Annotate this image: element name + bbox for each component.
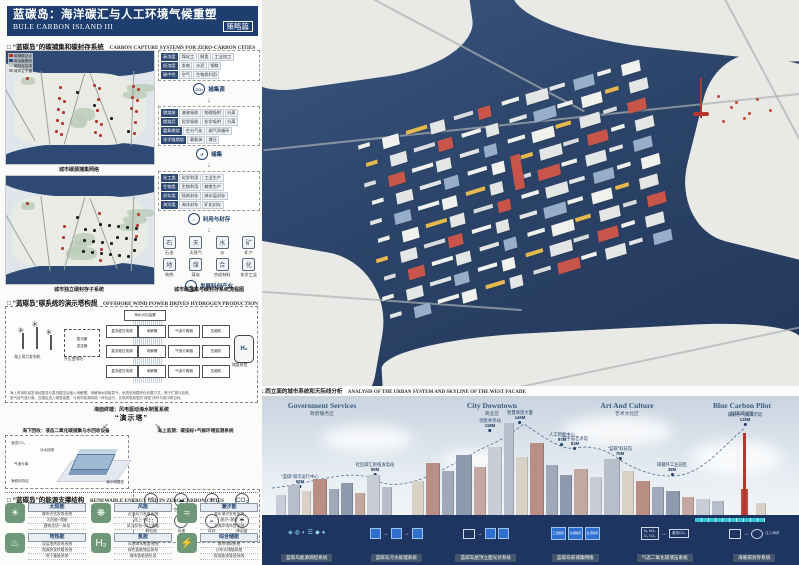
wind-component-box: 气液分离器 bbox=[168, 325, 200, 338]
city-block bbox=[455, 250, 471, 265]
energy-name: 风能 bbox=[114, 503, 172, 512]
boat-dot bbox=[730, 106, 733, 109]
resource-item: 合合成材料 bbox=[211, 258, 234, 278]
boat-dot bbox=[756, 98, 759, 101]
capture-point bbox=[63, 225, 66, 228]
energy-body: 地热能深层地热发电系统地源热泵供暖系统地下蓄能系统 bbox=[28, 533, 86, 560]
gas-bottom-label: O₂ CO₂ bbox=[644, 534, 656, 538]
table-cell: 化学链燃烧 bbox=[161, 136, 187, 144]
freshwater-label: 淡水回收 bbox=[40, 448, 54, 453]
solar-icon: ◍ bbox=[295, 530, 300, 537]
capture-point bbox=[56, 119, 59, 122]
chapter-badge: 策略篇 bbox=[223, 21, 254, 32]
table-cell: 生物类 bbox=[161, 183, 179, 191]
title-block: 蓝碳岛：海洋碳汇与人工环境气候重塑 BULE CARBON ISLAND III… bbox=[7, 6, 258, 36]
green-area bbox=[123, 91, 147, 99]
city-block bbox=[503, 236, 517, 251]
city-block bbox=[394, 209, 412, 225]
table-cell: 钢铁 bbox=[208, 62, 221, 70]
system-caption: 海底碳封存系统 bbox=[733, 554, 775, 562]
skyline-building bbox=[313, 479, 327, 515]
氢能-icon: H₂ bbox=[91, 533, 111, 553]
skyline-building bbox=[756, 503, 766, 515]
city-block bbox=[485, 280, 505, 290]
city-block bbox=[563, 138, 579, 147]
building-icon: ⌂ bbox=[188, 213, 200, 225]
tower-model-icon bbox=[70, 454, 115, 470]
city-block bbox=[390, 311, 402, 318]
city-block bbox=[545, 181, 569, 199]
energy-item: ☀太阳能城市光伏发电系统太阳能+储能建筑光伏一体化 bbox=[5, 503, 86, 530]
table-cell: 化学吸收 bbox=[179, 118, 201, 126]
resource-item: 石石油 bbox=[158, 236, 181, 256]
wind-component-box: 直流稳压电源 bbox=[106, 345, 138, 358]
sewage-icons: → → bbox=[352, 515, 442, 552]
step-capture-source: CO₂ 捕集源 bbox=[193, 83, 225, 95]
resource-label: 水 bbox=[220, 250, 224, 256]
综合储能-icon: ⚡ bbox=[177, 533, 197, 553]
district-name-zh: 艺术文化区 bbox=[600, 410, 653, 417]
city-block bbox=[627, 98, 647, 115]
city-block bbox=[519, 210, 537, 219]
resource-icon: 化 bbox=[242, 258, 255, 271]
skyline-building bbox=[712, 501, 724, 515]
city-block bbox=[437, 137, 453, 152]
utilization-storage-table: 化工类化学利用工业生产生物类生物利用粮食生产封存类陆地封存咸水层封存海洋类海洋封… bbox=[158, 171, 260, 211]
city-block bbox=[406, 125, 428, 135]
map-carbon-storage-subsystem bbox=[5, 175, 155, 285]
table-cell: 陆地封存 bbox=[179, 192, 201, 200]
energy-name: 潮汐能 bbox=[200, 503, 258, 512]
storage-point bbox=[116, 236, 119, 239]
district-art-and-culture: Art And Culture艺术文化区 bbox=[600, 401, 653, 417]
city-block bbox=[633, 135, 653, 152]
city-block bbox=[430, 119, 446, 134]
landmark-tower bbox=[510, 154, 525, 191]
capture-point bbox=[59, 86, 62, 89]
resource-item: 矿矿产 bbox=[238, 236, 261, 256]
district-name-en: Blue Carbon Pilot bbox=[713, 401, 771, 410]
capture-point bbox=[55, 130, 58, 133]
system-photovoltaic: → 蓝碳岛屋顶立面光伏系统 bbox=[441, 515, 531, 565]
separation-label: 气液分离 bbox=[14, 462, 28, 467]
district-name-en: Art And Culture bbox=[600, 401, 653, 410]
energy-grid: ☀太阳能城市光伏发电系统太阳能+储能建筑光伏一体化❋风能近海风力发电系统陆上+海… bbox=[5, 503, 258, 560]
monitoring-title: 海上监测：碳指标+气候环境监测系统 bbox=[133, 428, 258, 434]
system-caption: 蓝碳岛污水处理系统 bbox=[371, 554, 422, 562]
skyline-building bbox=[622, 471, 634, 515]
city-block bbox=[557, 257, 581, 275]
wind-turbine-icon bbox=[36, 327, 38, 349]
city-block bbox=[414, 302, 432, 318]
energy-body: 氢能风电海水制氢系统绿色氢能储运体系城市氢能源应用 bbox=[114, 533, 172, 560]
resource-label: 煤炭 bbox=[192, 272, 200, 278]
substation-label: 升压变电站 bbox=[64, 357, 83, 362]
table-cell: 制氢 bbox=[198, 53, 211, 61]
table-cell: 增压 bbox=[206, 136, 219, 144]
city-block bbox=[509, 274, 523, 289]
skyline-building bbox=[355, 493, 365, 515]
storage-point bbox=[118, 254, 121, 257]
skyline-building bbox=[530, 443, 544, 515]
city-block bbox=[501, 96, 519, 105]
table-cell: 烟气再循环 bbox=[206, 127, 232, 135]
system-caption: 蓝碳岛能源调控系统 bbox=[281, 554, 332, 562]
poster-title-en: BULE CARBON ISLAND III bbox=[13, 22, 252, 31]
resource-item: 煤煤炭 bbox=[185, 258, 208, 278]
energy-item: ⚡综合储能城市电网系统分布式储能网络智慧能源管理系统 bbox=[177, 533, 258, 560]
city-block bbox=[449, 213, 465, 228]
city-block bbox=[573, 234, 589, 243]
city-block bbox=[521, 190, 539, 199]
city-block bbox=[502, 257, 516, 272]
skyline-building bbox=[696, 499, 710, 515]
capture-point bbox=[61, 247, 64, 250]
gas-mix-box: N₂ NO₂ O₂ CO₂ bbox=[641, 527, 659, 540]
table-row: 低浓度发电水泥钢铁 bbox=[161, 62, 258, 70]
capture-point bbox=[58, 97, 61, 100]
energy-item: ❋风能近海风力发电系统陆上+海上风力发电+风力蓄能 bbox=[91, 503, 172, 530]
city-block bbox=[549, 239, 573, 257]
skyline-building bbox=[546, 465, 558, 515]
system-energy-control: ◈◍◐ ☰◆● 蓝碳岛能源调控系统 bbox=[262, 515, 352, 565]
city-block bbox=[484, 143, 498, 158]
city-block bbox=[645, 211, 665, 228]
city-block bbox=[629, 237, 643, 245]
resource-icon: 合 bbox=[216, 258, 229, 271]
city-block bbox=[438, 294, 460, 304]
system-seabed-storage: → 注入海床 海底碳封存系统 bbox=[710, 515, 799, 565]
storage-point bbox=[76, 216, 79, 219]
storage-point bbox=[76, 91, 79, 94]
storage-point bbox=[84, 228, 87, 231]
capture-point bbox=[62, 111, 65, 114]
city-block bbox=[378, 235, 390, 242]
city-block bbox=[639, 173, 659, 190]
well-icon bbox=[751, 529, 763, 539]
legend-chip bbox=[9, 69, 13, 72]
skyline-building bbox=[302, 491, 311, 515]
facade-caption-en: ANALYSIS OF THE URBAN SYSTEM AND SKYLINE… bbox=[348, 390, 526, 395]
desalination-box: 海水淡化装置 bbox=[124, 310, 166, 321]
city-block bbox=[466, 186, 486, 196]
capture-point bbox=[99, 134, 102, 137]
skyline-panel: Government Services政府服务区City Downtown商业区… bbox=[262, 396, 799, 515]
rectifier-label: 整流器 bbox=[77, 337, 88, 342]
carbon-source-box: 交通碳源 bbox=[568, 527, 583, 540]
tank-label: 储氢装置 bbox=[232, 363, 247, 368]
skyline-building bbox=[488, 447, 502, 515]
table-row: 生物类生物利用粮食生产 bbox=[161, 183, 258, 191]
table-cell: 空气 bbox=[179, 71, 192, 79]
city-block bbox=[579, 112, 601, 129]
city-block bbox=[617, 162, 631, 170]
energy-item: ≈潮汐能海水潮汐发电系统潮汐+潮流沿海岸线布置系统 bbox=[177, 503, 258, 530]
city-block bbox=[390, 151, 408, 167]
note-line-2: 氢气经气液分离、压缩后进入储氢装置，与城市能源网络一体化运行，实现风电制氢的“绿… bbox=[10, 396, 253, 401]
building-height: 118M bbox=[479, 423, 500, 428]
city-block bbox=[448, 233, 464, 248]
city-block bbox=[615, 182, 629, 190]
poster-title-zh: 蓝碳岛：海洋碳汇与人工环境气候重塑 bbox=[13, 9, 252, 22]
capture-point bbox=[26, 202, 29, 205]
storage-point bbox=[125, 237, 128, 240]
system-co2-liquefaction: N₂ NO₂ O₂ CO₂ → 液态CO₂ 气态二氧化碳液压系统 bbox=[620, 515, 710, 565]
skyline-building bbox=[288, 485, 300, 515]
resource-item: 地地热 bbox=[158, 258, 181, 278]
city-block bbox=[653, 229, 673, 246]
tank-icon bbox=[391, 528, 402, 539]
down-arrow-icon: ↓ bbox=[207, 227, 211, 234]
energy-name: 太阳能 bbox=[28, 503, 86, 512]
city-block bbox=[443, 175, 459, 190]
map-legend: 碳捕集站点碳运输管线碳封存区域城市主干道 bbox=[8, 53, 33, 75]
table-cell: 化学吸附 bbox=[202, 118, 224, 126]
table-cell: 化学利用 bbox=[179, 174, 201, 182]
city-block bbox=[635, 115, 655, 132]
storage-point bbox=[101, 241, 104, 244]
table-cell: 粮食生产 bbox=[202, 183, 224, 191]
city-block bbox=[406, 285, 424, 301]
skyline-building bbox=[329, 489, 339, 515]
storage-point bbox=[110, 242, 113, 245]
building-label: 元宇宙艺术馆83M bbox=[562, 436, 588, 450]
city-block bbox=[597, 225, 619, 242]
capture-point bbox=[137, 213, 140, 216]
city-block bbox=[603, 106, 617, 114]
storage-point bbox=[135, 227, 138, 230]
city-block bbox=[591, 187, 613, 204]
wind-component-box: 气液分离器 bbox=[168, 345, 200, 358]
system-capture-network: 工业碳源交通碳源生活碳源 蓝碳岛碳捕集网络 bbox=[531, 515, 621, 565]
skyline-building bbox=[412, 481, 424, 515]
storage-point bbox=[134, 238, 137, 241]
district-government-services: Government Services政府服务区 bbox=[288, 401, 357, 417]
energy-name: 地热能 bbox=[28, 533, 86, 542]
wind-component-box: 电解槽 bbox=[138, 365, 166, 378]
skyline-building bbox=[652, 487, 664, 515]
energy-icons: ◈◍◐ ☰◆● bbox=[282, 515, 332, 552]
down-arrow-icon: ↓ bbox=[207, 162, 211, 169]
demo-tower-base bbox=[741, 489, 748, 515]
storage-point bbox=[127, 255, 130, 258]
skyline-building bbox=[456, 455, 472, 515]
skyline-building bbox=[604, 459, 620, 515]
table-cell: 化工类 bbox=[161, 174, 179, 182]
city-block bbox=[490, 181, 504, 196]
arrow-right-icon: → bbox=[477, 531, 483, 537]
city-block bbox=[388, 171, 406, 187]
city-block bbox=[525, 88, 549, 106]
panel-icon bbox=[463, 529, 475, 539]
capture-point bbox=[26, 77, 29, 80]
city-block bbox=[479, 242, 499, 252]
systems-strip: ◈◍◐ ☰◆● 蓝碳岛能源调控系统 → → 蓝碳岛污水处理系统 → 蓝碳岛屋顶 bbox=[262, 515, 799, 565]
wind-turbine-icon bbox=[50, 335, 52, 350]
city-block bbox=[376, 256, 388, 263]
table-cell: 海洋类 bbox=[161, 201, 179, 209]
storage-point bbox=[109, 253, 112, 256]
skyline-building bbox=[636, 481, 650, 515]
table-cell: 工业加工 bbox=[212, 53, 234, 61]
capture-point bbox=[96, 109, 99, 112]
down-arrow-icon: ↓ bbox=[207, 97, 211, 104]
legend-chip bbox=[9, 64, 13, 67]
wind-component-box: 压缩机 bbox=[202, 325, 230, 338]
city-block bbox=[509, 114, 527, 123]
carbon-source-box: 生活碳源 bbox=[585, 527, 600, 540]
storage-point bbox=[82, 250, 85, 253]
city-block bbox=[599, 205, 621, 222]
city-block bbox=[478, 105, 492, 120]
district-name-zh: 政府服务区 bbox=[288, 410, 357, 417]
capture-point bbox=[133, 132, 136, 135]
city-block bbox=[575, 214, 591, 223]
table-cell: 分离 bbox=[225, 109, 238, 117]
city-block bbox=[611, 124, 625, 132]
capture-point bbox=[62, 236, 65, 239]
city-block bbox=[569, 176, 585, 185]
resource-label: 合成材料 bbox=[214, 272, 231, 278]
city-block bbox=[533, 266, 551, 275]
boat-dot bbox=[722, 120, 725, 123]
storage-point bbox=[133, 249, 136, 252]
tower-model-label: 演示塔模型 bbox=[106, 480, 124, 485]
capture-point bbox=[61, 122, 64, 125]
table-cell: 高浓度 bbox=[161, 53, 179, 61]
skyline-building bbox=[442, 471, 454, 515]
city-axonometric-render bbox=[262, 0, 799, 386]
resource-icon: 地 bbox=[163, 258, 176, 271]
storage-point bbox=[91, 251, 94, 254]
skyline-building bbox=[276, 495, 286, 515]
resource-icon: 水 bbox=[216, 236, 229, 249]
table-cell: 生物质利用 bbox=[193, 71, 219, 79]
city-block bbox=[372, 197, 384, 204]
capture-point bbox=[100, 123, 103, 126]
city-block bbox=[605, 86, 619, 94]
wind-component-box: 电解槽 bbox=[138, 345, 166, 358]
gas-top-label: N₂ NO₂ bbox=[644, 529, 656, 533]
wind-turbine-icon bbox=[22, 333, 24, 349]
skyline-building bbox=[590, 477, 602, 515]
city-block bbox=[432, 256, 454, 266]
table-cell: 咸水层封存 bbox=[202, 192, 228, 200]
table-cell: 溶液吸收 bbox=[179, 109, 201, 117]
city-block bbox=[497, 199, 511, 214]
city-block bbox=[402, 227, 420, 243]
storage-point bbox=[127, 130, 130, 133]
hydrogen-tank: H₂ bbox=[234, 335, 254, 363]
capture-point bbox=[60, 133, 63, 136]
city-block bbox=[551, 219, 575, 237]
city-block bbox=[364, 180, 376, 187]
table-cell: 水泥 bbox=[193, 62, 206, 70]
arrow-right-icon: → bbox=[743, 531, 749, 537]
skyline-building bbox=[666, 491, 680, 515]
step-utilization: ⌂ 利用与封存 bbox=[188, 213, 231, 225]
wind-component-box: 气液分离器 bbox=[168, 365, 200, 378]
city-block bbox=[358, 142, 370, 149]
gas-flow: N₂ NO₂ O₂ CO₂ → 液态CO₂ bbox=[620, 515, 710, 552]
step-utilization-label: 利用与封存 bbox=[203, 215, 231, 223]
energy-line: 地下蓄能系统 bbox=[28, 554, 86, 560]
city-block bbox=[496, 219, 510, 234]
resource-icon: 石 bbox=[163, 236, 176, 249]
carbon-source-box: 工业碳源 bbox=[551, 527, 566, 540]
arrow-right-icon: → bbox=[404, 531, 410, 537]
facade-caption: □西立面的城市系统和天际线分析 ANALYSIS OF THE URBAN SY… bbox=[262, 387, 526, 395]
storage-point bbox=[83, 239, 86, 242]
storage-point bbox=[93, 229, 96, 232]
inverter-label: 逆变器 bbox=[77, 344, 88, 349]
wind-icon: ◈ bbox=[288, 530, 293, 537]
city-block bbox=[430, 276, 452, 286]
capture-point bbox=[130, 107, 133, 110]
system-caption: 蓝碳岛屋顶立面光伏系统 bbox=[455, 554, 516, 562]
table-cell: 海洋封存 bbox=[179, 201, 201, 209]
city-block bbox=[478, 262, 498, 272]
co2-icon: CO₂ bbox=[193, 83, 205, 95]
demo-tower-label: “演示塔” bbox=[5, 413, 258, 423]
city-block bbox=[491, 161, 505, 176]
demo-tower-section: 海面终端：风电驱动海水制氢系统 “演示塔” ↙↘ bbox=[5, 406, 258, 430]
district-name-en: Government Services bbox=[288, 401, 357, 410]
node-icon: ● bbox=[322, 530, 326, 537]
energy-name: 氢能 bbox=[114, 533, 172, 542]
resource-icon: 矿 bbox=[242, 236, 255, 249]
city-block bbox=[436, 157, 452, 172]
liquid-co2-box: 液态CO₂ bbox=[669, 529, 689, 538]
boat-dot bbox=[748, 112, 751, 115]
capture-point bbox=[134, 121, 137, 124]
city-block bbox=[467, 166, 487, 176]
map1-caption: 城市碳源捕集网络 bbox=[5, 166, 153, 173]
resource-icon-grid: 石石油天天然气水水矿矿产地地热煤煤炭合合成材料化化学工业 bbox=[158, 236, 260, 278]
district-name-en: City Downtown bbox=[467, 401, 517, 410]
turbine-label: 海上风力发电机 bbox=[14, 355, 41, 360]
capture-point bbox=[93, 84, 96, 87]
table-cell: 碳中性 bbox=[161, 71, 179, 79]
city-block bbox=[412, 162, 434, 172]
city-block bbox=[461, 128, 481, 138]
energy-line: 智慧能源管理系统 bbox=[200, 554, 258, 560]
step-capture-source-label: 捕集源 bbox=[208, 85, 225, 93]
map2-caption: 城市独立碳封存子系统 bbox=[5, 286, 153, 293]
energy-name: 综合储能 bbox=[200, 533, 258, 542]
city-block bbox=[573, 74, 595, 91]
skyline-building bbox=[426, 463, 440, 515]
storage-tank-icon bbox=[729, 529, 741, 539]
carbon-flow-column: 高浓度煤化工制氢工业加工低浓度发电水泥钢铁碳中性空气生物质利用 CO₂ 捕集源 … bbox=[158, 50, 260, 292]
building-label: 碳循环工业园区38M bbox=[657, 462, 687, 476]
arrow-right-icon: → bbox=[661, 531, 667, 537]
city-block bbox=[507, 134, 525, 143]
energy-body: 太阳能城市光伏发电系统太阳能+储能建筑光伏一体化 bbox=[28, 503, 86, 530]
resource-label: 地热 bbox=[165, 272, 173, 278]
seabed-icons: → 注入海床 bbox=[710, 515, 799, 552]
grid-icon: ☰ bbox=[308, 530, 313, 537]
poster: 蓝碳岛：海洋碳汇与人工环境气候重塑 BULE CARBON ISLAND III… bbox=[0, 0, 799, 565]
undersea-title: 海下回收：液态二氧化碳捕集与水回收设备 bbox=[5, 428, 127, 434]
skyline-building bbox=[560, 475, 572, 515]
city-block bbox=[454, 110, 474, 120]
city-block bbox=[537, 163, 561, 181]
city-block bbox=[426, 218, 448, 228]
boat-dot bbox=[743, 117, 746, 120]
city-block bbox=[473, 204, 493, 214]
building-label: 智慧商贸大厦146M bbox=[507, 410, 533, 424]
